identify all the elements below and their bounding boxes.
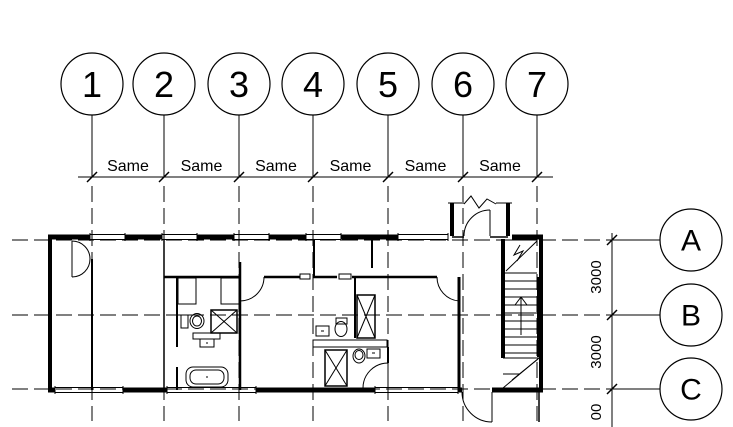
dim-label-bay1[interactable]: Same xyxy=(107,158,149,175)
grid-bubble-1[interactable]: 1 xyxy=(61,53,123,115)
doors xyxy=(72,241,492,422)
grid-bubble-6[interactable]: 6 xyxy=(432,53,494,115)
grid-bubble-4[interactable]: 4 xyxy=(282,53,344,115)
dim-label-bc[interactable]: 3000 xyxy=(588,335,605,368)
floor-plan-svg: Same Same Same Same Same Same 3000 3000 … xyxy=(0,0,733,427)
bathroom1-fixtures xyxy=(181,310,237,387)
grid-lines-horizontal xyxy=(12,240,660,389)
closet-double-door xyxy=(72,241,90,277)
floor-plan-canvas[interactable]: Same Same Same Same Same Same 3000 3000 … xyxy=(0,0,733,427)
grid-bubble-label: 5 xyxy=(378,64,398,105)
dim-label-below-c[interactable]: 00 xyxy=(588,404,605,421)
shower xyxy=(325,350,347,386)
top-dimension[interactable]: Same Same Same Same Same Same xyxy=(78,158,553,182)
grid-bubble-label: B xyxy=(681,300,701,333)
right-dimension[interactable]: 3000 3000 00 xyxy=(588,233,617,427)
door-bathroom2 xyxy=(363,363,388,388)
dim-label-bay2[interactable]: Same xyxy=(181,158,223,175)
grid-bubble-2[interactable]: 2 xyxy=(133,53,195,115)
grid-bubble-7[interactable]: 7 xyxy=(506,53,568,115)
grid-bubble-A[interactable]: A xyxy=(660,209,722,271)
linen-cabinet xyxy=(357,295,375,338)
cabinet-small xyxy=(367,349,380,358)
toilet xyxy=(335,318,347,337)
dim-label-bay3[interactable]: Same xyxy=(255,158,297,175)
grid-bubble-label: 2 xyxy=(154,64,174,105)
sink-oval xyxy=(353,349,365,363)
dim-label-bay4[interactable]: Same xyxy=(330,158,372,175)
grid-bubble-5[interactable]: 5 xyxy=(357,53,419,115)
sink-left xyxy=(316,326,329,336)
dim-label-bay5[interactable]: Same xyxy=(405,158,447,175)
counter xyxy=(313,340,387,347)
exterior-walls xyxy=(48,235,543,392)
door-right-room xyxy=(437,277,459,301)
grid-bubble-label: 6 xyxy=(453,64,473,105)
break-line xyxy=(464,196,496,208)
grid-bubble-label: 4 xyxy=(303,64,323,105)
grid-bubble-label: 3 xyxy=(229,64,249,105)
grid-bubble-label: 1 xyxy=(82,64,102,105)
dim-label-ab[interactable]: 3000 xyxy=(588,260,605,293)
stair-break-line xyxy=(514,245,523,261)
entry-vestibule xyxy=(448,196,512,237)
windows xyxy=(55,233,458,394)
door-rear-exit xyxy=(462,392,492,422)
staircase xyxy=(503,239,540,422)
vanity-sink xyxy=(193,333,220,347)
toilet xyxy=(181,314,204,329)
door-corridor-left xyxy=(240,277,264,301)
grid-bubble-label: C xyxy=(680,374,702,407)
grid-bubble-label: A xyxy=(681,225,701,258)
bathroom2-fixtures xyxy=(313,295,387,386)
grid-bubble-C[interactable]: C xyxy=(660,358,722,420)
dim-label-bay6[interactable]: Same xyxy=(479,158,521,175)
shower xyxy=(211,310,237,333)
bathtub xyxy=(186,367,228,387)
grid-bubble-label: 7 xyxy=(527,64,547,105)
grid-bubble-3[interactable]: 3 xyxy=(208,53,270,115)
grid-bubble-B[interactable]: B xyxy=(660,284,722,346)
